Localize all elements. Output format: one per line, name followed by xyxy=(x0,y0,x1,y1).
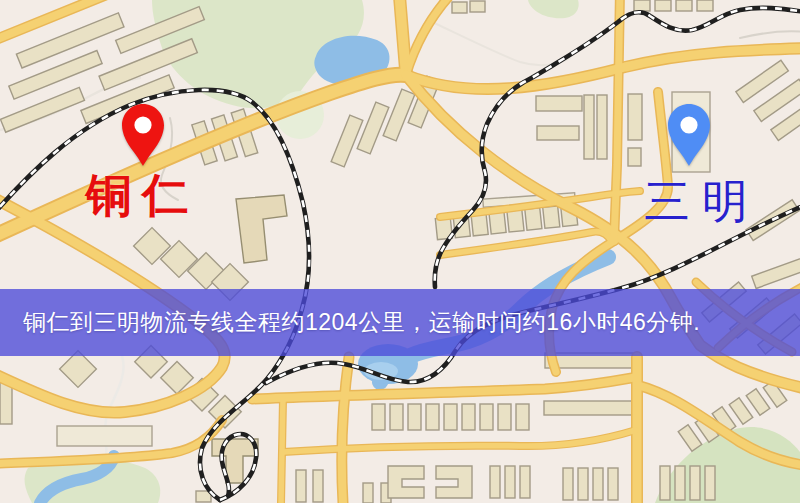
origin-label: 铜仁 xyxy=(86,172,198,218)
destination-label: 三明 xyxy=(644,178,760,224)
map-background xyxy=(0,0,800,503)
route-info-banner: 铜仁到三明物流专线全程约1204公里，运输时间约16小时46分钟. xyxy=(0,289,800,356)
origin-pin-icon[interactable] xyxy=(121,102,165,168)
destination-pin-icon[interactable] xyxy=(667,102,711,168)
route-info-text: 铜仁到三明物流专线全程约1204公里，运输时间约16小时46分钟. xyxy=(23,307,700,338)
map-view: 铜仁 三明 铜仁到三明物流专线全程约1204公里，运输时间约16小时46分钟. xyxy=(0,0,800,503)
